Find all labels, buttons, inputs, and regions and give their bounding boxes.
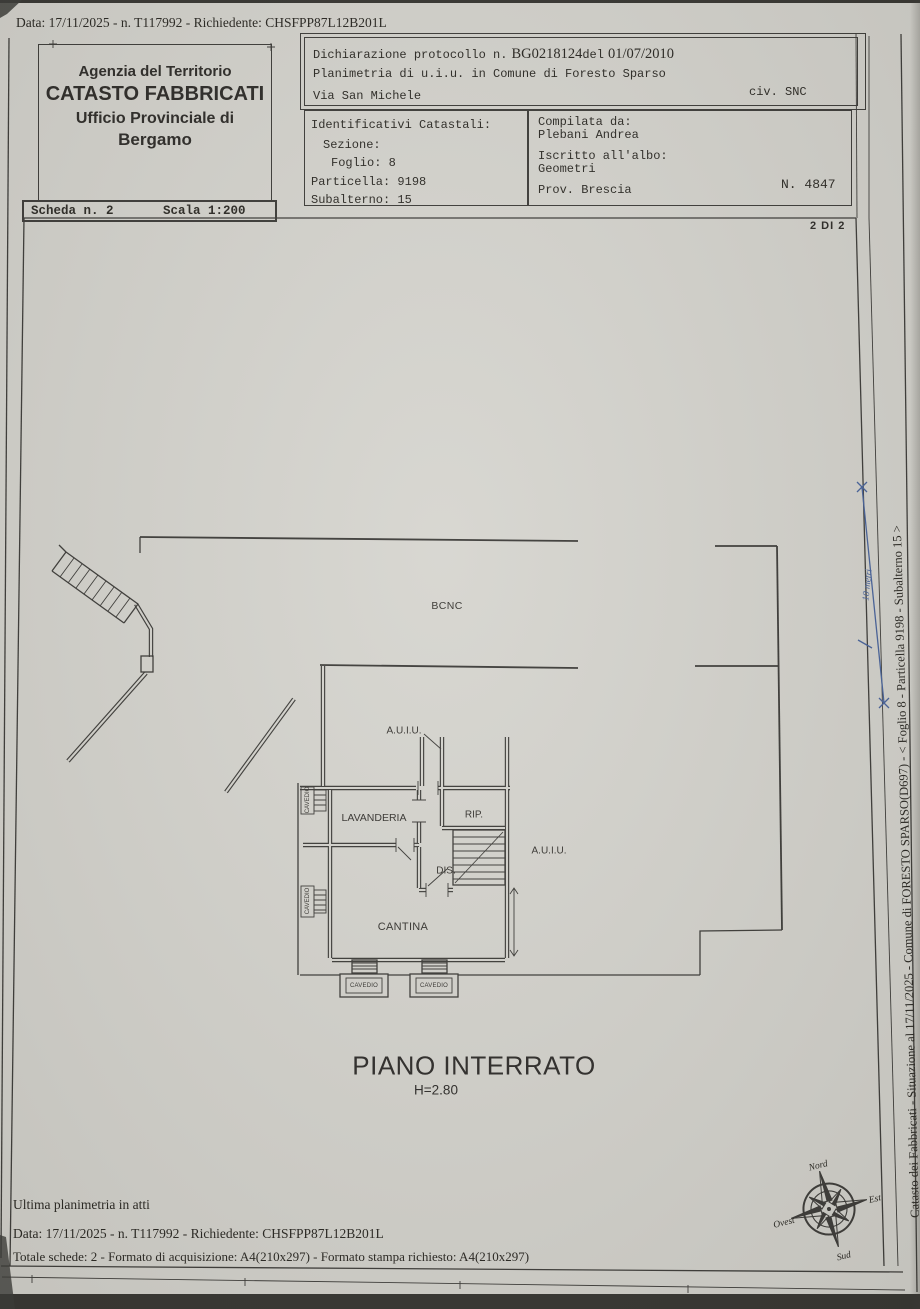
street-line: Via San Michele (313, 89, 421, 103)
interior-stair (453, 830, 505, 885)
cavedio-label-bottom-1: CAVEDIO (350, 983, 378, 989)
footer-request-info: Data: 17/11/2025 - n. T117992 - Richiede… (13, 1226, 384, 1242)
compiler-name: Plebani Andrea (538, 128, 639, 142)
compass-east-label: Est (867, 1193, 883, 1206)
protocol-number: BG0218124 (511, 46, 582, 62)
prov-field: Prov. Brescia (538, 183, 632, 197)
particella-field: Particella: 9198 (311, 175, 426, 189)
scala-value: Scala 1:200 (163, 204, 246, 218)
room-label-dis: DIS. (436, 866, 455, 877)
sheet-index: 2 DI 2 (810, 220, 845, 232)
protocol-date: 01/07/2010 (608, 46, 674, 62)
cavedio-label-left-2: CAVEDIO (305, 888, 311, 915)
room-label-bcnc: BCNC (431, 600, 462, 612)
cavedio-label-left-1: CAVEDIO (305, 787, 311, 814)
scheda-box: Scheda n. 2 Scala 1:200 (22, 200, 277, 222)
foglio-field: Foglio: 8 (331, 156, 396, 170)
compass-rose: Nord Est Sud Ovest (761, 1149, 894, 1277)
agency-name: Agenzia del Territorio (39, 63, 271, 80)
footer-note: Ultima planimetria in atti (13, 1197, 150, 1213)
footer-format-info: Totale schede: 2 - Formato di acquisizio… (13, 1249, 529, 1265)
catasto-title: CATASTO FABBRICATI (39, 83, 271, 106)
cavedio-label-bottom-2: CAVEDIO (420, 983, 448, 989)
scanned-cadastral-document: { "top_bar": { "text": "Data: 17/11/2025… (0, 0, 920, 1309)
planimetria-line: Planimetria di u.i.u. in Comune di Fores… (313, 67, 666, 81)
declaration-box: Dichiarazione protocollo n. BG0218124del… (304, 37, 858, 106)
floor-title: PIANO INTERRATO (352, 1051, 595, 1082)
scan-edge-bottom (0, 1294, 920, 1309)
protocol-del: del (582, 48, 604, 62)
scan-edge-top (0, 0, 920, 3)
exterior-stair (52, 545, 138, 623)
identifiers-box: Identificativi Catastali: Sezione: Fogli… (304, 110, 528, 206)
walls (68, 604, 510, 960)
albo-value: Geometri (538, 162, 596, 176)
compass-west-label: Ovest (772, 1216, 796, 1231)
scan-edge-right (910, 0, 920, 1309)
subalterno-field: Subalterno: 15 (311, 193, 412, 207)
scheda-number: Scheda n. 2 (31, 204, 114, 218)
sezione-field: Sezione: (323, 138, 381, 152)
compiler-label: Compilata da: (538, 115, 632, 129)
office-line: Ufficio Provinciale di (39, 110, 271, 128)
agency-box: Agenzia del Territorio CATASTO FABBRICAT… (38, 44, 272, 201)
room-label-cantina: CANTINA (378, 921, 428, 933)
room-label-rip: RIP. (465, 810, 483, 821)
scan-edge-left (0, 0, 30, 1309)
civic-number: civ. SNC (749, 85, 807, 99)
declaration-label: Dichiarazione protocollo n. (313, 48, 507, 62)
office-city: Bergamo (39, 130, 271, 150)
identifiers-title: Identificativi Catastali: (311, 118, 491, 132)
compiler-box: Compilata da: Plebani Andrea Iscritto al… (528, 110, 852, 206)
request-info-top: Data: 17/11/2025 - n. T117992 - Richiede… (16, 15, 387, 31)
room-label-auiu-left: A.U.I.U. (386, 726, 421, 737)
page-borders (1, 33, 917, 1293)
albo-number: N. 4847 (781, 177, 836, 192)
compass-north-label: Nord (807, 1159, 829, 1174)
albo-label: Iscritto all'albo: (538, 149, 668, 163)
room-label-auiu-right: A.U.I.U. (531, 846, 566, 857)
room-label-lavanderia: LAVANDERIA (342, 812, 407, 824)
cavedio-ducts-bottom (340, 960, 458, 997)
floor-height: H=2.80 (414, 1083, 458, 1098)
compass-south-label: Sud (836, 1250, 852, 1263)
